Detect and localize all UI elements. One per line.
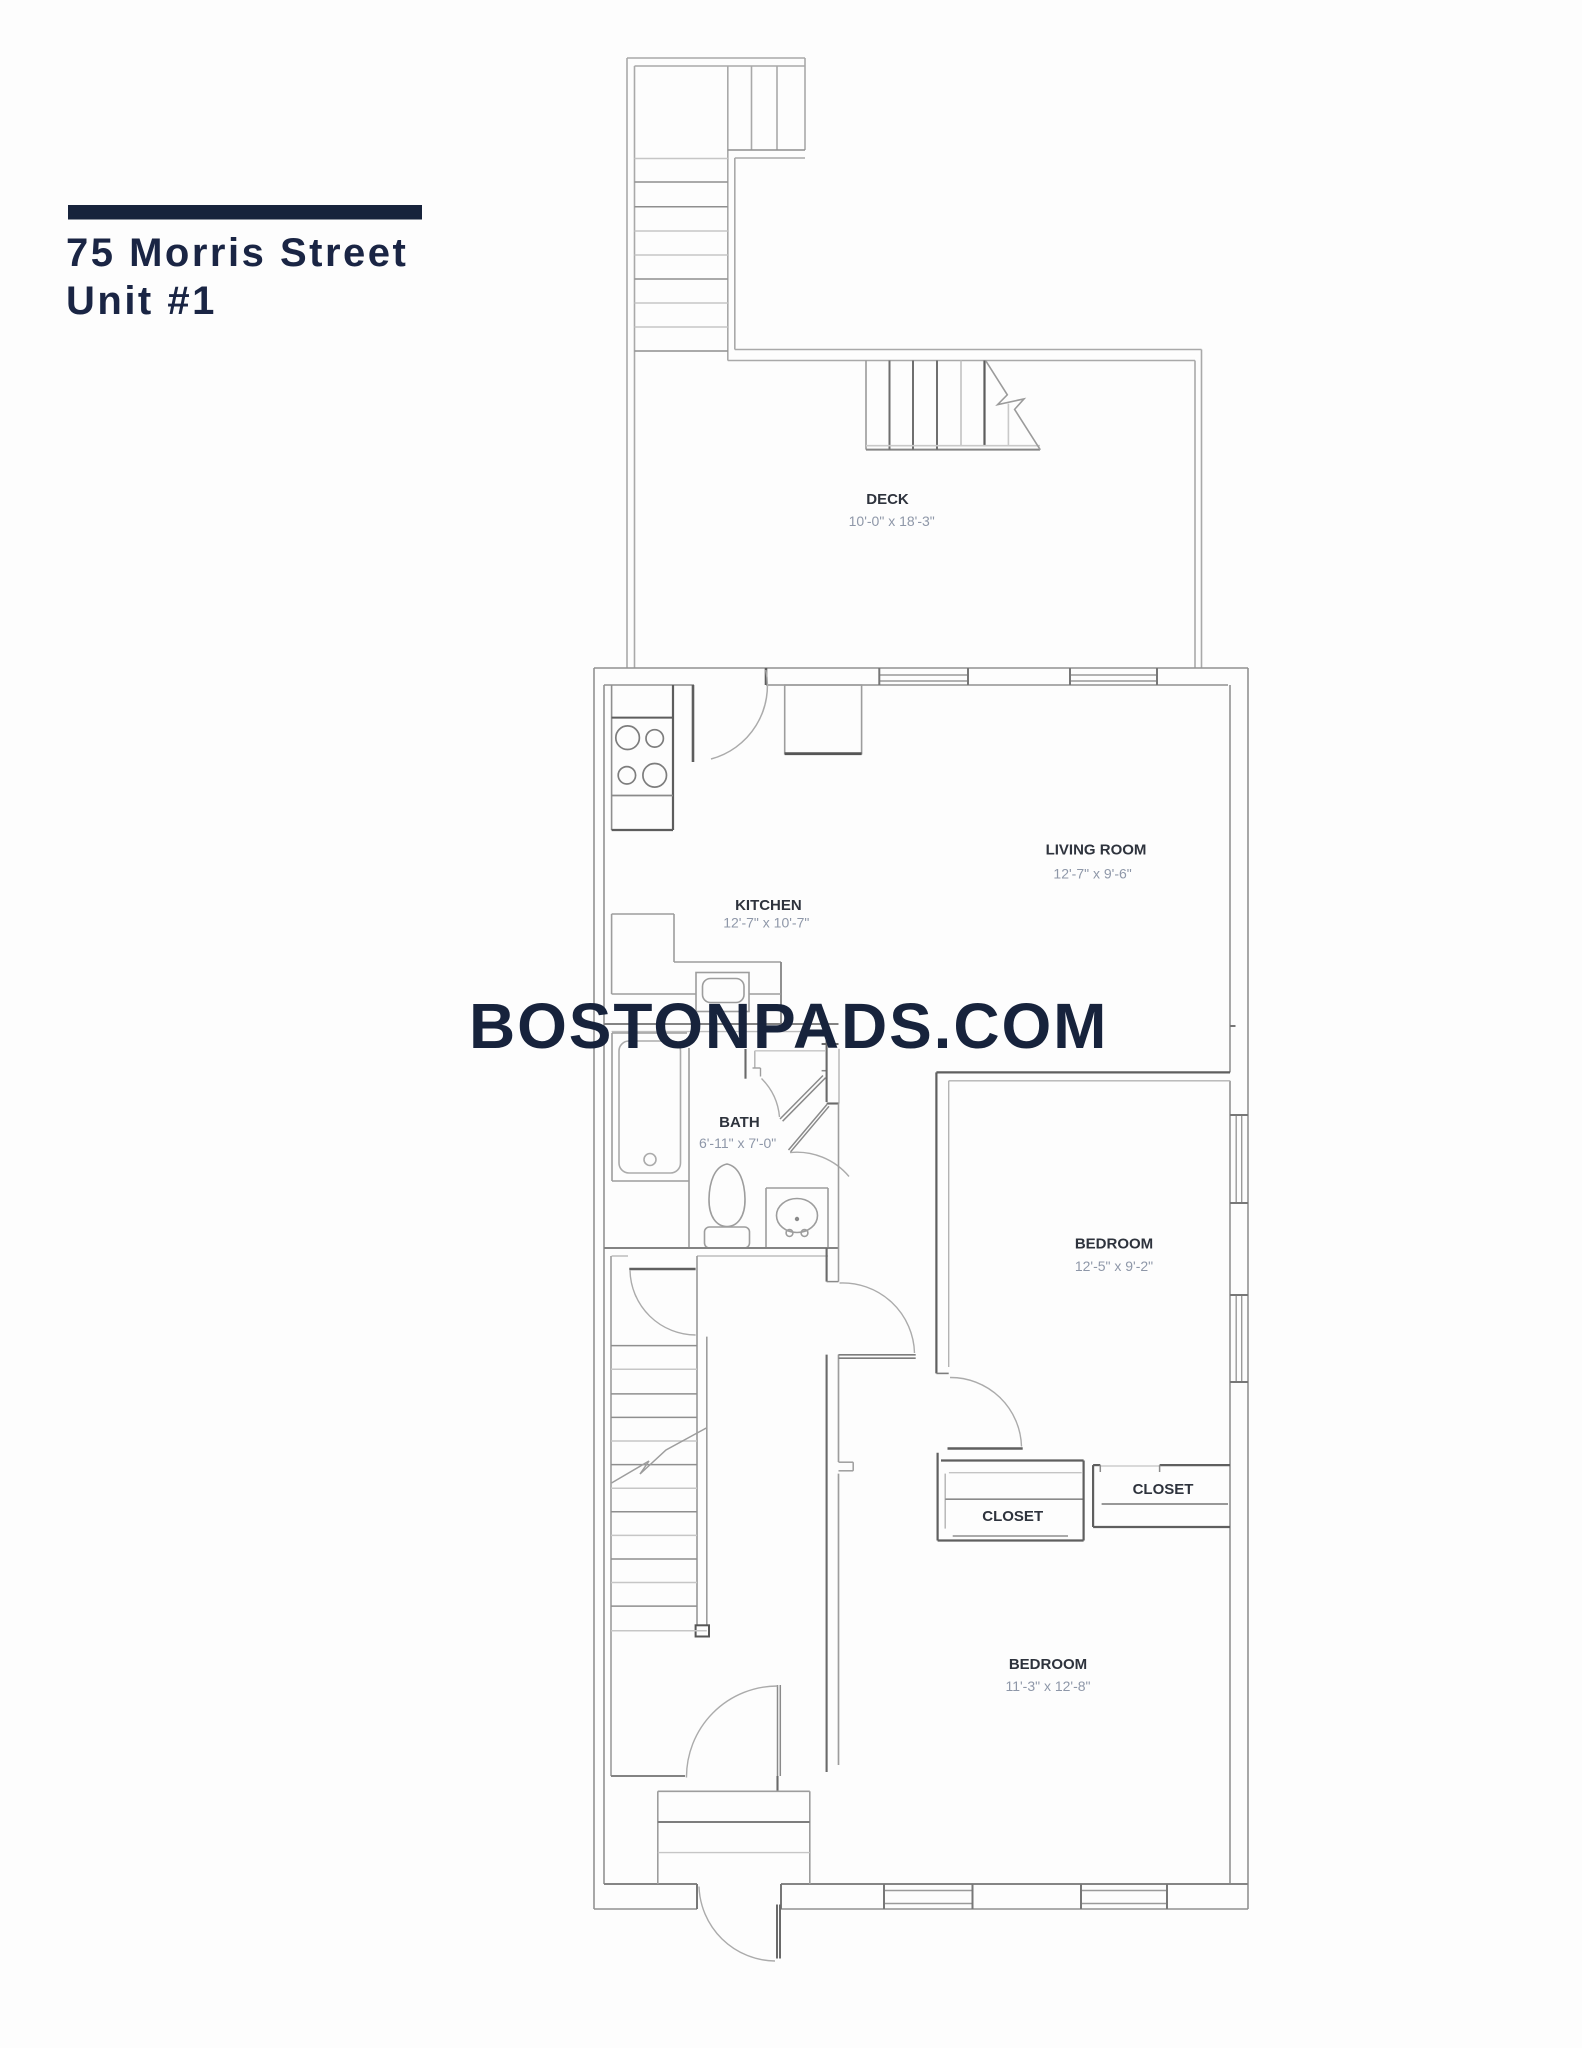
svg-text:12'-5" x 9'-2": 12'-5" x 9'-2": [1075, 1258, 1153, 1274]
svg-text:11'-3" x 12'-8": 11'-3" x 12'-8": [1005, 1678, 1090, 1694]
svg-text:12'-7" x 10'-7": 12'-7" x 10'-7": [723, 915, 809, 931]
svg-text:LIVING ROOM: LIVING ROOM: [1046, 842, 1147, 859]
svg-text:BOSTONPADS.COM: BOSTONPADS.COM: [469, 990, 1108, 1062]
svg-text:CLOSET: CLOSET: [982, 1508, 1043, 1525]
svg-text:BATH: BATH: [719, 1114, 760, 1131]
svg-text:75 Morris Street: 75 Morris Street: [66, 231, 408, 275]
svg-text:DECK: DECK: [866, 491, 909, 508]
svg-text:CLOSET: CLOSET: [1133, 1481, 1194, 1498]
svg-text:Unit #1: Unit #1: [66, 279, 217, 323]
svg-text:12'-7" x 9'-6": 12'-7" x 9'-6": [1053, 866, 1131, 882]
svg-text:BEDROOM: BEDROOM: [1009, 1656, 1087, 1673]
svg-text:KITCHEN: KITCHEN: [735, 897, 802, 914]
svg-text:10'-0" x 18'-3": 10'-0" x 18'-3": [849, 513, 935, 529]
svg-text:BEDROOM: BEDROOM: [1075, 1236, 1153, 1253]
svg-text:6'-11" x 7'-0": 6'-11" x 7'-0": [699, 1135, 776, 1151]
